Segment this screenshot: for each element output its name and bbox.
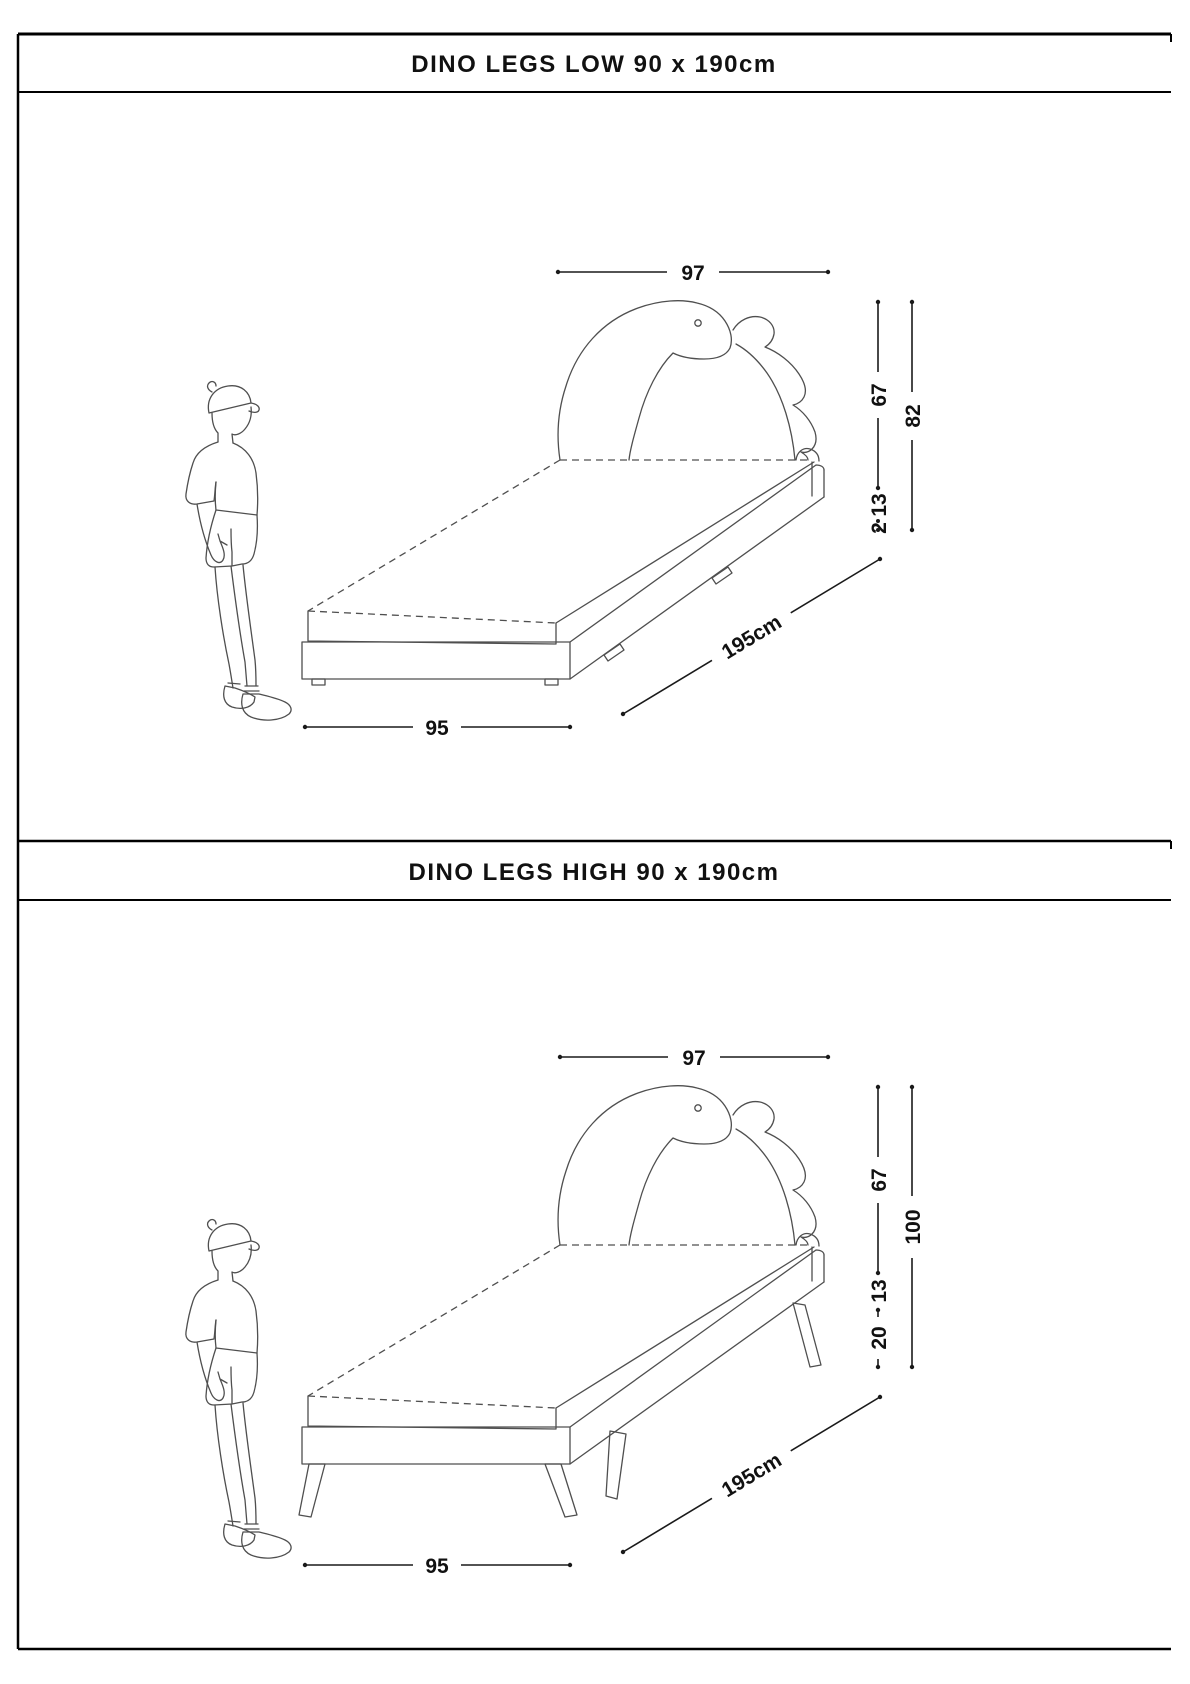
panel-low: DINO LEGS LOW 90 x 190cm 97 6 (186, 51, 925, 740)
dim-headboard-width-low: 97 (681, 262, 704, 285)
dim-leg-height-low: 2 (868, 522, 891, 534)
dim-headboard-height-low: 67 (868, 383, 891, 406)
dim-leg-height-high: 20 (868, 1326, 891, 1349)
panel-low-title: DINO LEGS LOW 90 x 190cm (411, 51, 776, 78)
panel-high: DINO LEGS HIGH 90 x 190cm 97 (186, 859, 925, 1578)
panel-high-title: DINO LEGS HIGH 90 x 190cm (409, 859, 780, 886)
dim-bed-length-low: 195cm (718, 611, 786, 664)
dim-bed-width-low: 95 (425, 717, 449, 740)
page-border (18, 34, 1171, 1649)
dim-headboard-height-high: 67 (868, 1168, 891, 1191)
dim-total-height-high: 100 (902, 1209, 925, 1244)
dim-frame-height-high: 13 (868, 1279, 891, 1302)
dim-headboard-width-high: 97 (682, 1047, 705, 1070)
dim-total-height-low: 82 (902, 404, 925, 427)
panel-low-dimensions: 97 67 82 13 2 195cm 95 (303, 260, 925, 740)
spec-sheet-canvas: DINO LEGS LOW 90 x 190cm 97 6 (0, 0, 1190, 1684)
bed-feet-low (312, 567, 732, 685)
dim-bed-width-high: 95 (425, 1555, 449, 1578)
spec-sheet: DINO LEGS LOW 90 x 190cm 97 6 (0, 0, 1190, 1684)
dim-bed-length-high: 195cm (718, 1449, 786, 1502)
dimension-ticks-high (303, 1055, 914, 1567)
dim-frame-height-low: 13 (868, 493, 891, 516)
